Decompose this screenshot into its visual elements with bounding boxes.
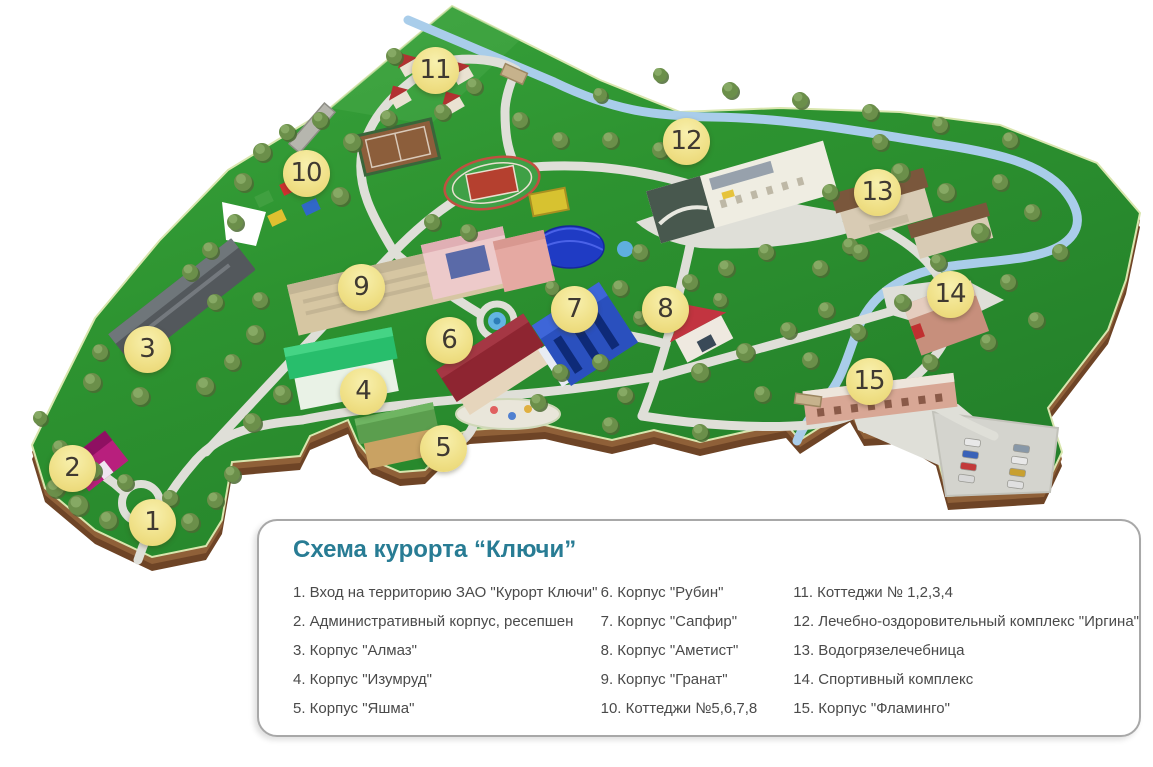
legend-item: 1. Вход на территорию ЗАО "Курорт Ключи" [293, 578, 601, 607]
legend-item: 15. Корпус "Фламинго" [793, 694, 1139, 723]
map-marker-7[interactable]: 7 [551, 286, 598, 333]
legend-item: 3. Корпус "Алмаз" [293, 636, 601, 665]
legend-item: 12. Лечебно-оздоровительный комплекс "Ир… [793, 607, 1139, 636]
legend-item: 4. Корпус "Изумруд" [293, 665, 601, 694]
legend-column-3: 11. Коттеджи № 1,2,3,412. Лечебно-оздоро… [793, 578, 1139, 723]
resort-map-page: 123456789101112131415 Схема курорта “Клю… [0, 0, 1153, 767]
legend-columns: 1. Вход на территорию ЗАО "Курорт Ключи"… [293, 578, 1139, 723]
legend-item: 10. Коттеджи №5,6,7,8 [601, 694, 794, 723]
legend-item: 13. Водогрязелечебница [793, 636, 1139, 665]
legend-column-1: 1. Вход на территорию ЗАО "Курорт Ключи"… [293, 578, 601, 723]
legend-column-2: 6. Корпус "Рубин"7. Корпус "Сапфир"8. Ко… [601, 578, 794, 723]
map-marker-11[interactable]: 11 [412, 47, 459, 94]
map-marker-2[interactable]: 2 [49, 445, 96, 492]
legend-item: 6. Корпус "Рубин" [601, 578, 794, 607]
map-marker-9[interactable]: 9 [338, 264, 385, 311]
legend-item: 11. Коттеджи № 1,2,3,4 [793, 578, 1139, 607]
map-marker-13[interactable]: 13 [854, 169, 901, 216]
legend-item: 8. Корпус "Аметист" [601, 636, 794, 665]
map-marker-1[interactable]: 1 [129, 499, 176, 546]
map-marker-6[interactable]: 6 [426, 317, 473, 364]
map-marker-10[interactable]: 10 [283, 150, 330, 197]
legend-item: 2. Административный корпус, ресепшен [293, 607, 601, 636]
legend-item: 5. Корпус "Яшма" [293, 694, 601, 723]
legend-item: 7. Корпус "Сапфир" [601, 607, 794, 636]
map-marker-15[interactable]: 15 [846, 358, 893, 405]
map-marker-12[interactable]: 12 [663, 118, 710, 165]
map-marker-3[interactable]: 3 [124, 326, 171, 373]
map-marker-8[interactable]: 8 [642, 286, 689, 333]
map-marker-5[interactable]: 5 [420, 425, 467, 472]
legend-title: Схема курорта “Ключи” [293, 536, 1139, 564]
legend-item: 14. Спортивный комплекс [793, 665, 1139, 694]
legend-panel: Схема курорта “Ключи” 1. Вход на террито… [257, 519, 1141, 737]
legend-item: 9. Корпус "Гранат" [601, 665, 794, 694]
map-marker-4[interactable]: 4 [340, 368, 387, 415]
map-marker-14[interactable]: 14 [927, 271, 974, 318]
